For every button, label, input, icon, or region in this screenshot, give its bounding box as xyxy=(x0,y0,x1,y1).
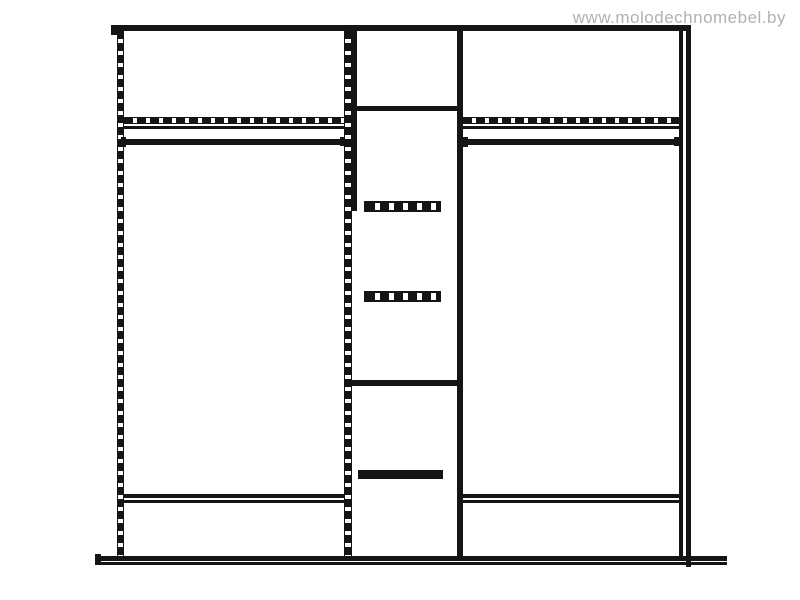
right-side-panel-outer-line xyxy=(686,25,691,567)
mid-column-middle-shelf-line xyxy=(352,380,457,386)
mid-column-top-shelf-line xyxy=(352,106,463,111)
mid-drawer-dashed-handle-1 xyxy=(364,201,441,212)
mid-drawer-dashed-handle-2 xyxy=(364,291,441,302)
right-rail-right-cap xyxy=(674,137,679,146)
right-bottom-shelf-top-line xyxy=(463,494,679,498)
left-shelf-hidden-edge-dashed xyxy=(124,117,344,124)
right-side-panel-inner-line xyxy=(679,31,683,557)
mid-column-left-panel-line xyxy=(352,31,357,211)
base-top-line xyxy=(96,556,727,561)
left-bottom-shelf-bottom-line xyxy=(124,500,345,503)
left-rail-left-cap xyxy=(121,137,126,147)
watermark-text: www.molodechnomebel.by xyxy=(573,8,786,28)
base-bottom-line xyxy=(96,562,727,565)
left-hanging-rail xyxy=(121,139,345,145)
left-side-panel-dashed-line xyxy=(117,31,124,557)
right-shelf-front-edge-line xyxy=(463,126,679,129)
wardrobe-schematic-drawing: www.molodechnomebel.by xyxy=(0,0,800,600)
left-shelf-front-edge-line xyxy=(124,126,344,129)
left-bottom-shelf-top-line xyxy=(124,494,345,498)
right-rail-left-cap xyxy=(463,137,468,147)
right-hanging-rail xyxy=(463,139,678,145)
right-bottom-shelf-bottom-line xyxy=(463,500,679,503)
center-divider-dashed-line xyxy=(344,31,352,557)
mid-drawer-solid-handle xyxy=(358,470,443,479)
right-shelf-hidden-edge-dashed xyxy=(463,117,679,124)
left-rail-right-cap xyxy=(340,137,345,146)
